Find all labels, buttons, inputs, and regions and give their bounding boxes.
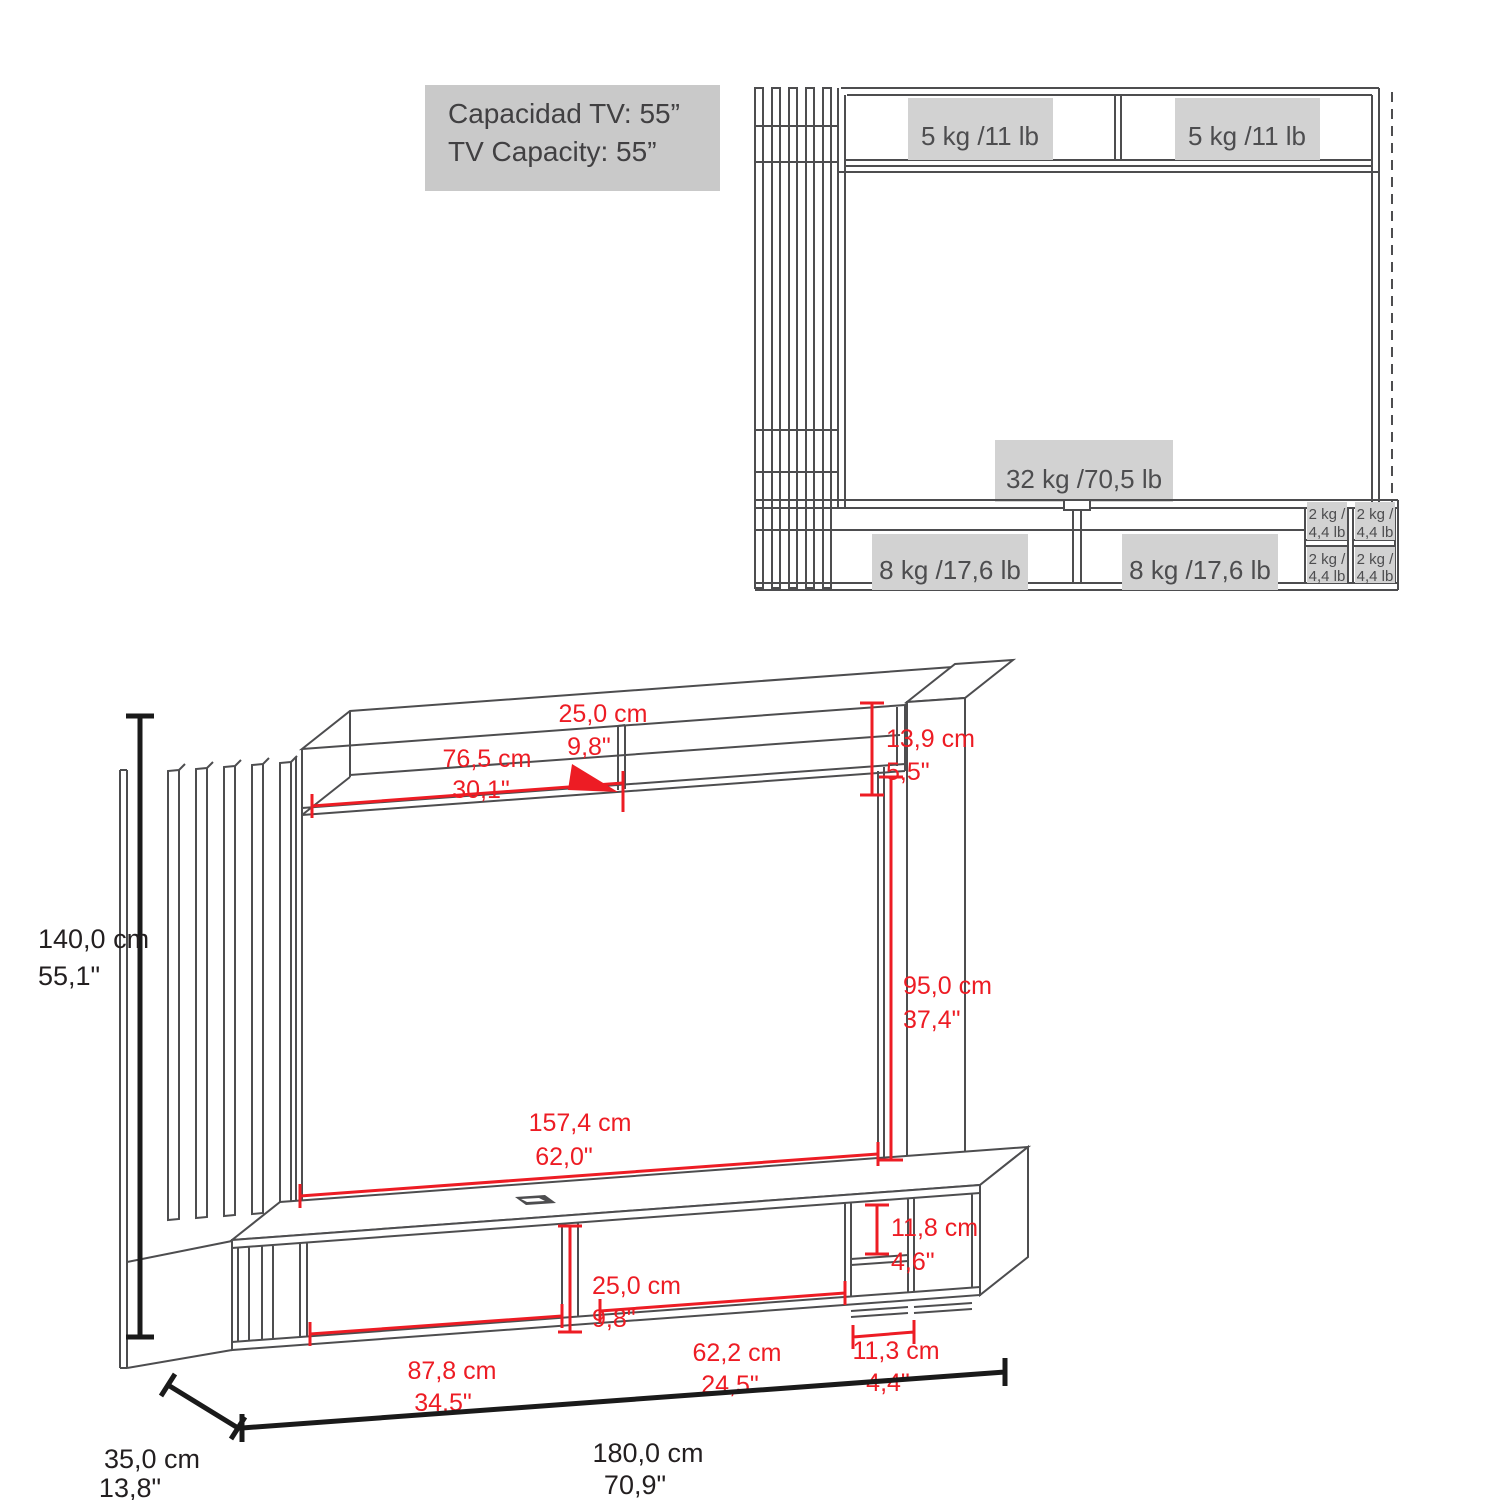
cabinet-right-capacity: 8 kg /17,6 lb	[1129, 555, 1271, 585]
tv-capacity-box: Capacidad TV: 55” TV Capacity: 55”	[425, 85, 720, 191]
dim-cubby-height-in: 4,6"	[891, 1248, 935, 1276]
dim-shelf-height-line	[860, 703, 884, 795]
tv-mount-bracket	[1064, 500, 1090, 510]
dim-shelf-height-cm: 13,9 cm	[886, 725, 975, 753]
dim-height-line	[126, 716, 154, 1337]
cubby-capacity-4-kg: 2 kg /	[1357, 551, 1395, 568]
dim-shelf-width-in: 30,1"	[452, 776, 510, 804]
dim-width-in: 70,9"	[604, 1470, 666, 1500]
diagram-canvas: Capacidad TV: 55” TV Capacity: 55” 5 kg …	[0, 0, 1500, 1500]
side-wall-panel	[120, 770, 232, 1368]
cubby-capacity-2-kg: 2 kg /	[1357, 506, 1395, 523]
dim-opening-height-line	[879, 777, 903, 1160]
shelf-left-capacity: 5 kg /11 lb	[921, 121, 1039, 151]
cabinet-left-capacity: 8 kg /17,6 lb	[879, 555, 1021, 585]
cubby-capacity-1-kg: 2 kg /	[1309, 506, 1347, 523]
slat-panel	[168, 756, 297, 1220]
front-view: 5 kg /11 lb 5 kg /11 lb 32 kg /70,5 lb 8…	[755, 88, 1398, 590]
dim-depth-in: 13,8"	[99, 1473, 161, 1500]
dim-depth-line	[161, 1374, 245, 1439]
dim-shelf-width-cm: 76,5 cm	[443, 745, 532, 773]
dim-shelf-height-in: 5,5"	[886, 758, 930, 786]
tv-panel-capacity: 32 kg /70,5 lb	[1006, 464, 1162, 494]
cubby-capacity-3-kg: 2 kg /	[1309, 551, 1347, 568]
cubby-capacity-labels: 2 kg / 4,4 lb 2 kg / 4,4 lb 2 kg / 4,4 l…	[1307, 502, 1395, 585]
dim-cubby-height-cm: 11,8 cm	[891, 1214, 978, 1242]
tv-capacity-line-en: TV Capacity: 55”	[448, 136, 657, 167]
cubby-capacity-2-lb: 4,4 lb	[1357, 524, 1394, 541]
cubby-capacity-1-lb: 4,4 lb	[1309, 524, 1346, 541]
overall-dimensions: 140,0 cm 55,1" 180,0 cm 70,9" 35,0 cm 13…	[38, 716, 1005, 1500]
dim-shelf-depth-cm: 25,0 cm	[559, 700, 648, 728]
dim-console-height-cm: 25,0 cm	[592, 1272, 681, 1300]
cubby-capacity-3-lb: 4,4 lb	[1309, 568, 1346, 585]
cubby-capacity-4-lb: 4,4 lb	[1357, 568, 1394, 585]
dim-opening-height-cm: 95,0 cm	[903, 972, 992, 1000]
front-slat-panel	[755, 88, 838, 588]
dim-console-right-width-cm: 62,2 cm	[693, 1339, 782, 1367]
back-panel-left-edge	[296, 757, 302, 1216]
shelf-right-capacity: 5 kg /11 lb	[1188, 121, 1306, 151]
dim-opening-width-cm: 157,4 cm	[529, 1109, 632, 1137]
dim-opening-width-in: 62,0"	[535, 1143, 593, 1171]
dim-height-cm: 140,0 cm	[38, 924, 149, 954]
furniture-dimension-sheet: Capacidad TV: 55” TV Capacity: 55” 5 kg …	[0, 0, 1500, 1500]
dim-cubby-width-cm: 11,3 cm	[852, 1337, 939, 1365]
dim-shelf-depth-arrow	[568, 764, 618, 792]
dim-height-in: 55,1"	[38, 961, 100, 991]
dimension-view: 76,5 cm 30,1" 25,0 cm 9,8" 13,9 cm 5,5" …	[38, 660, 1028, 1500]
dim-opening-height-in: 37,4"	[903, 1006, 961, 1034]
tv-capacity-line-es: Capacidad TV: 55”	[448, 98, 680, 129]
back-panel-bottom-edge	[302, 767, 884, 1216]
dim-depth-cm: 35,0 cm	[104, 1444, 200, 1474]
dim-width-cm: 180,0 cm	[592, 1438, 703, 1468]
front-console-lines	[755, 500, 1398, 590]
hutch	[302, 667, 953, 815]
dim-shelf-depth-in: 9,8"	[567, 733, 611, 761]
dim-console-left-width-cm: 87,8 cm	[408, 1357, 497, 1385]
